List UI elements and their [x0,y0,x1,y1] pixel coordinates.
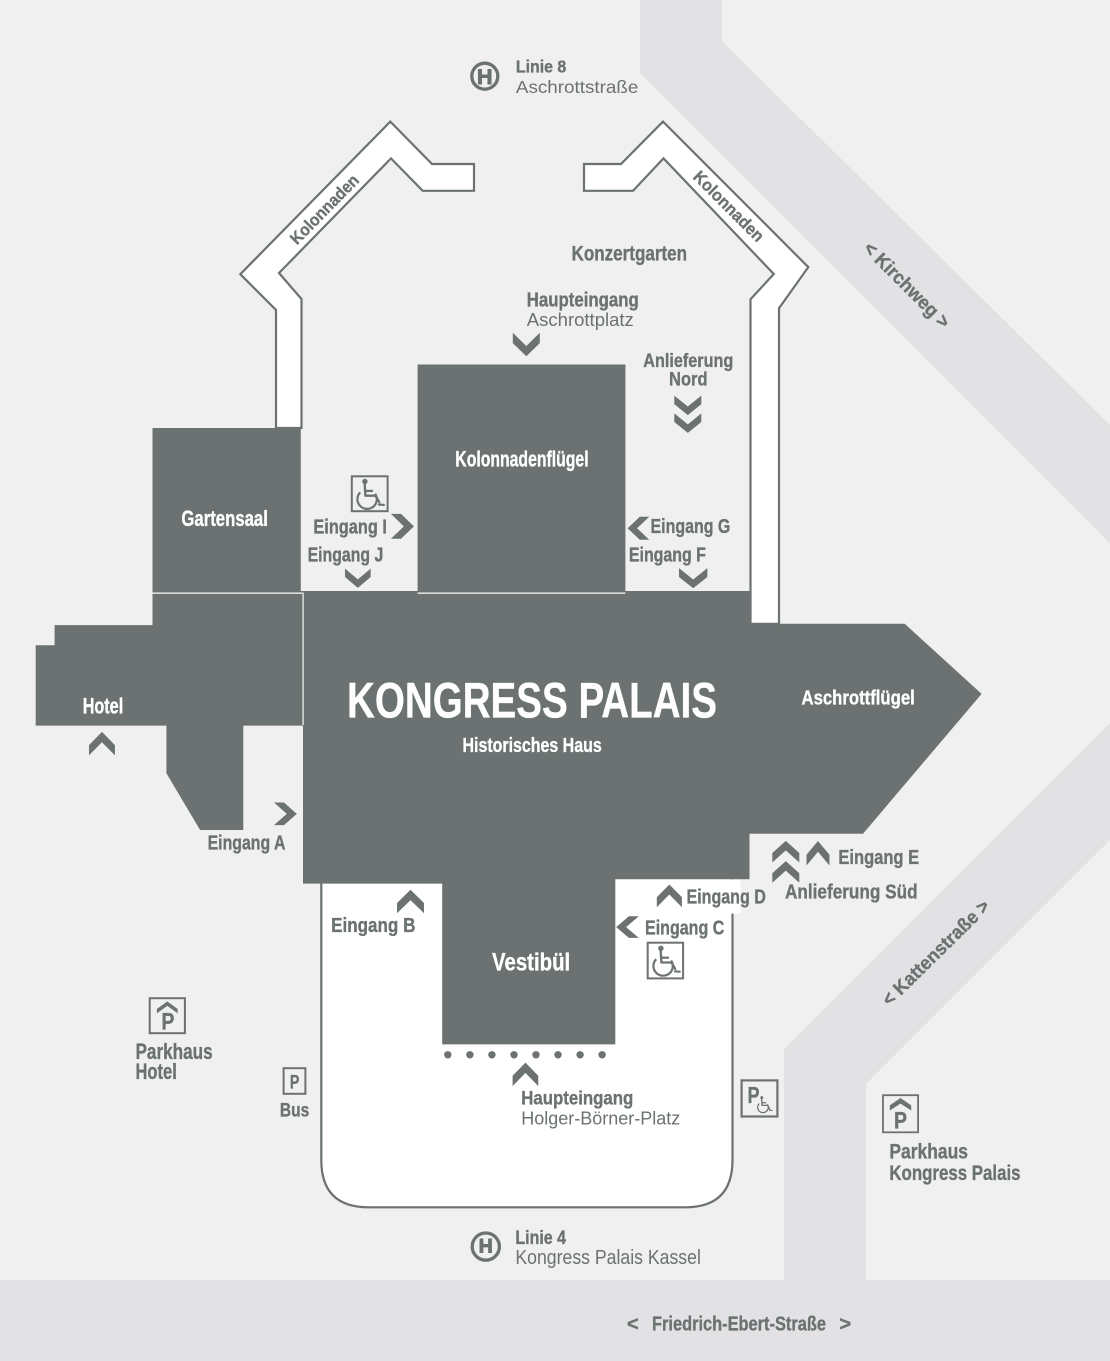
svg-text:Aschrottflügel: Aschrottflügel [802,688,915,710]
svg-text:Kolonnadenflügel: Kolonnadenflügel [455,447,588,472]
svg-text:Eingang B: Eingang B [331,914,415,937]
svg-text:Haupteingang: Haupteingang [527,288,639,311]
svg-text:Eingang E: Eingang E [838,846,919,869]
svg-text:Linie 8: Linie 8 [516,57,567,77]
svg-text:Nord: Nord [669,368,708,390]
svg-text:Gartensaal: Gartensaal [181,506,268,531]
svg-text:Parkhaus: Parkhaus [889,1140,968,1164]
svg-text:Friedrich-Ebert-Straße: Friedrich-Ebert-Straße [652,1314,826,1336]
svg-text:KONGRESS PALAIS: KONGRESS PALAIS [347,672,717,729]
svg-text:Anlieferung Süd: Anlieferung Süd [785,881,918,904]
svg-text:Historisches Haus: Historisches Haus [463,735,602,757]
svg-text:Haupteingang: Haupteingang [521,1088,633,1110]
svg-text:Hotel: Hotel [136,1059,177,1084]
svg-text:H: H [479,1237,493,1258]
svg-text:Hotel: Hotel [83,693,124,718]
svg-text:Kongress Palais Kassel: Kongress Palais Kassel [515,1246,701,1269]
svg-text:P: P [290,1071,300,1093]
svg-text:Eingang G: Eingang G [651,515,731,538]
svg-text:Eingang C: Eingang C [645,916,724,939]
svg-text:Vestibül: Vestibül [492,949,570,977]
svg-text:Eingang A: Eingang A [208,832,286,855]
svg-text:Eingang D: Eingang D [687,886,766,909]
svg-text:<: < [627,1314,639,1336]
svg-text:Eingang J: Eingang J [308,544,384,567]
svg-text:Kongress Palais: Kongress Palais [889,1161,1020,1185]
svg-text:>: > [839,1314,851,1336]
svg-text:Aschrottstraße: Aschrottstraße [516,77,639,97]
svg-text:H: H [477,65,493,89]
svg-text:P: P [894,1108,907,1135]
svg-text:P: P [161,1009,174,1036]
svg-text:Eingang I: Eingang I [313,516,387,539]
svg-text:Konzertgarten: Konzertgarten [572,243,688,266]
svg-text:Aschrottplatz: Aschrottplatz [527,309,634,330]
svg-text:Eingang F: Eingang F [629,544,706,567]
svg-text:Bus: Bus [280,1100,309,1122]
svg-text:P: P [748,1082,760,1108]
svg-text:Holger-Börner-Platz: Holger-Börner-Platz [521,1107,680,1128]
